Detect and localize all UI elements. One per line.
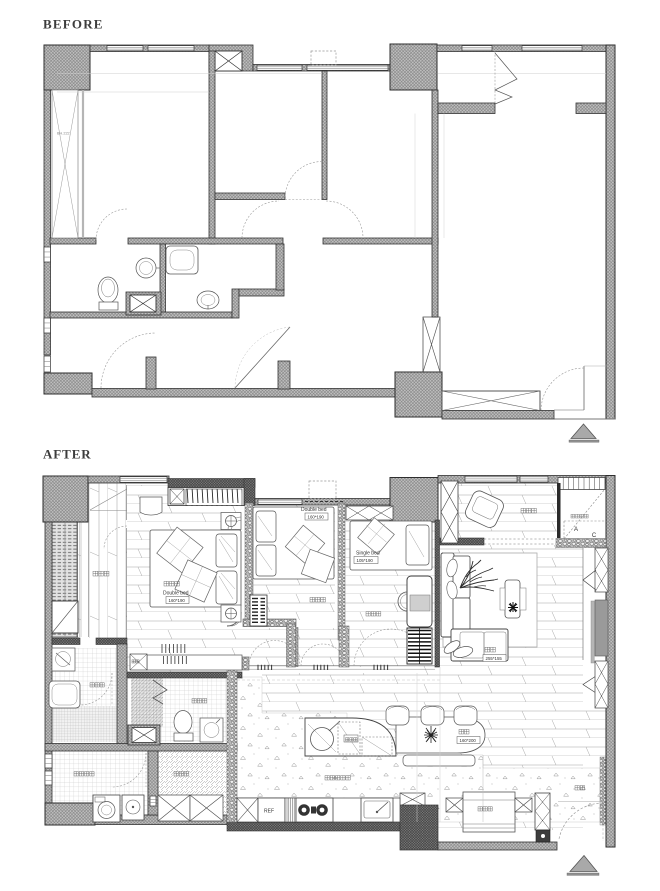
svg-text:Single bed: Single bed xyxy=(356,551,380,557)
svg-text:160*190: 160*190 xyxy=(169,598,186,603)
svg-text:160*190: 160*190 xyxy=(308,515,325,520)
svg-text:105*190: 105*190 xyxy=(357,558,374,563)
svg-text:160*200: 160*200 xyxy=(460,738,477,743)
svg-text:C: C xyxy=(592,533,597,539)
svg-text:BEFORE: BEFORE xyxy=(43,17,104,32)
svg-text:REF: REF xyxy=(264,809,274,815)
svg-text:BH.222: BH.222 xyxy=(57,132,70,136)
svg-text:255*155: 255*155 xyxy=(486,656,503,661)
svg-text:A: A xyxy=(574,527,578,533)
svg-text:Double bed: Double bed xyxy=(301,507,327,513)
svg-text:AFTER: AFTER xyxy=(43,447,92,462)
svg-text:Double bed: Double bed xyxy=(163,591,189,597)
